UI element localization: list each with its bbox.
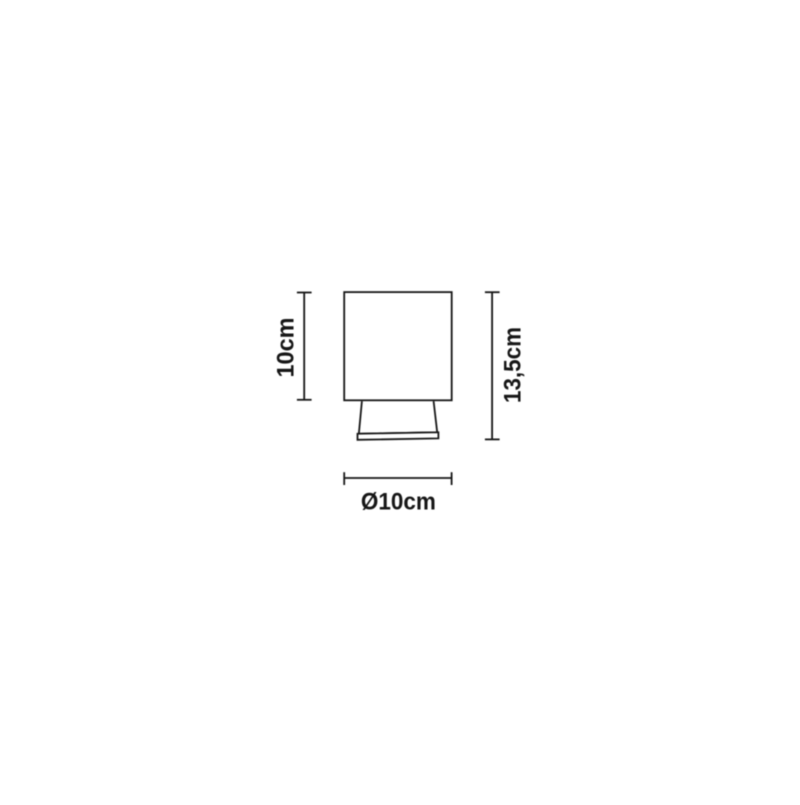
- svg-text:10cm: 10cm: [273, 318, 300, 378]
- svg-text:Ø10cm: Ø10cm: [361, 489, 436, 516]
- svg-text:13,5cm: 13,5cm: [500, 327, 527, 403]
